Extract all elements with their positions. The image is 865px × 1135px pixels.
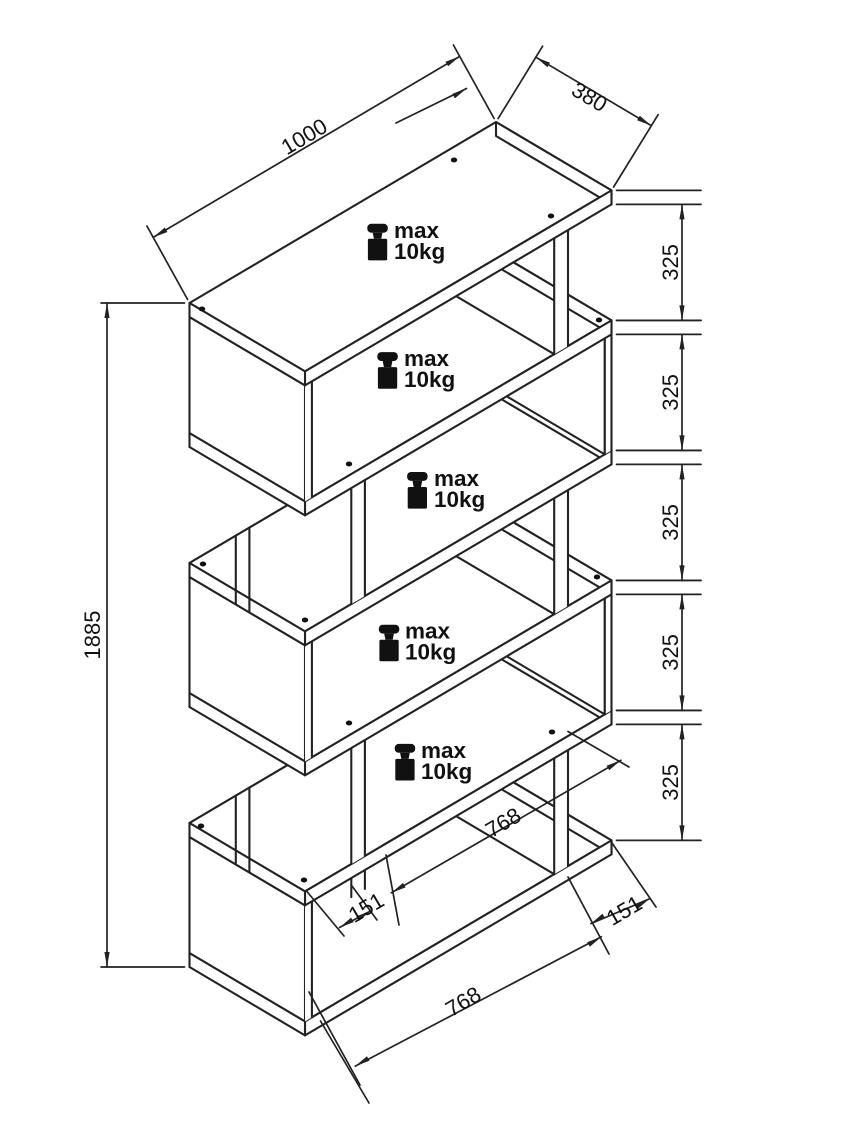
svg-text:325: 325 — [658, 244, 683, 281]
svg-text:10kg: 10kg — [405, 640, 456, 665]
svg-text:325: 325 — [658, 634, 683, 671]
svg-text:1885: 1885 — [80, 611, 105, 660]
svg-text:325: 325 — [658, 764, 683, 801]
svg-text:10kg: 10kg — [421, 759, 472, 784]
svg-text:10kg: 10kg — [404, 367, 455, 392]
svg-text:325: 325 — [658, 504, 683, 541]
svg-text:325: 325 — [658, 374, 683, 411]
svg-text:10kg: 10kg — [434, 487, 485, 512]
svg-text:10kg: 10kg — [394, 239, 445, 264]
